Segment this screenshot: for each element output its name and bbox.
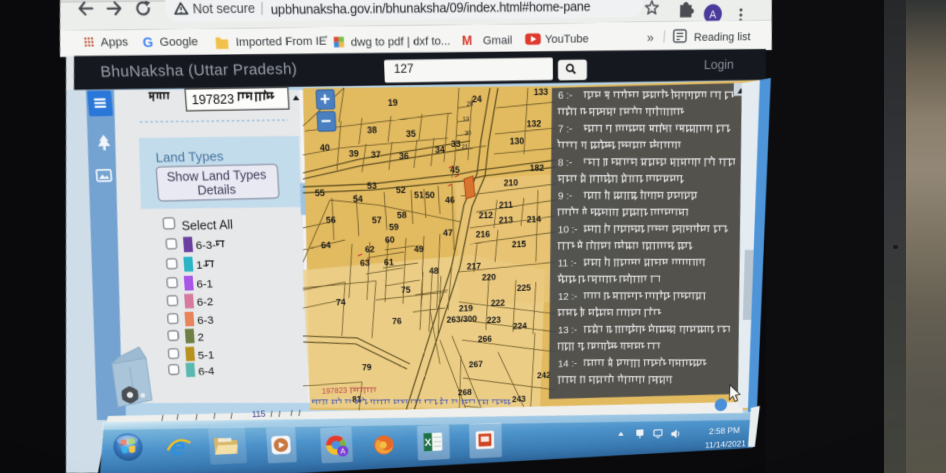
svg-text:197823: 197823 xyxy=(191,92,234,107)
svg-text:115: 115 xyxy=(252,410,266,420)
svg-text:24: 24 xyxy=(472,94,482,105)
svg-text:74: 74 xyxy=(336,298,347,308)
svg-text:51: 51 xyxy=(414,191,425,201)
svg-text:»: » xyxy=(647,30,654,45)
svg-text:38: 38 xyxy=(367,125,378,136)
svg-text:34: 34 xyxy=(435,145,446,155)
svg-text:A: A xyxy=(709,8,716,21)
svg-text:225: 225 xyxy=(517,284,532,294)
svg-text:55: 55 xyxy=(315,188,326,198)
svg-text:dwg to pdf | dxf to...: dwg to pdf | dxf to... xyxy=(351,34,451,49)
svg-text:56: 56 xyxy=(326,216,337,226)
svg-text:214: 214 xyxy=(527,215,542,225)
svg-text:243: 243 xyxy=(512,395,526,405)
svg-text:212: 212 xyxy=(479,211,494,221)
svg-text:Apps: Apps xyxy=(100,35,129,49)
svg-text:263/300: 263/300 xyxy=(446,314,477,325)
svg-text:213: 213 xyxy=(499,216,514,226)
svg-text:49: 49 xyxy=(414,245,424,255)
svg-text:Not secure: Not secure xyxy=(192,1,255,17)
svg-text:M: M xyxy=(462,33,473,48)
svg-text:79: 79 xyxy=(362,363,372,373)
svg-text:215: 215 xyxy=(512,240,527,250)
svg-text:52: 52 xyxy=(396,186,407,196)
svg-text:37: 37 xyxy=(371,150,381,160)
svg-text:6-3: 6-3 xyxy=(197,314,214,327)
svg-text:266: 266 xyxy=(478,335,493,345)
svg-text:6-2: 6-2 xyxy=(196,296,213,309)
svg-text:21: 21 xyxy=(462,144,469,151)
svg-text:133: 133 xyxy=(534,87,549,98)
svg-text:BhuNaksha (Uttar Pradesh): BhuNaksha (Uttar Pradesh) xyxy=(100,60,298,80)
svg-text:46: 46 xyxy=(445,196,455,206)
svg-text:A: A xyxy=(340,447,346,456)
svg-text:9 :-: 9 :- xyxy=(558,191,572,202)
svg-text:50: 50 xyxy=(425,191,435,201)
svg-text:Show Land Types: Show Land Types xyxy=(166,168,267,184)
svg-text:8 :-: 8 :- xyxy=(558,157,573,168)
svg-text:223: 223 xyxy=(487,316,502,326)
svg-text:6 :-: 6 :- xyxy=(558,90,573,101)
svg-text:45: 45 xyxy=(450,165,460,175)
svg-text:127: 127 xyxy=(394,61,414,76)
svg-text:7 :-: 7 :- xyxy=(558,124,573,135)
svg-text:11/14/2021: 11/14/2021 xyxy=(705,439,746,450)
svg-text:6-3-: 6-3- xyxy=(195,238,216,251)
svg-text:11 :-: 11 :- xyxy=(558,258,577,269)
svg-text:61: 61 xyxy=(384,258,394,268)
svg-text:76: 76 xyxy=(392,317,402,327)
svg-text:219: 219 xyxy=(459,304,474,314)
svg-text:X: X xyxy=(424,436,431,448)
svg-text:211: 211 xyxy=(499,201,513,211)
svg-text:132: 132 xyxy=(527,119,542,130)
svg-text:6-4: 6-4 xyxy=(198,365,215,378)
svg-text:53: 53 xyxy=(367,182,378,192)
svg-text:13 :-: 13 :- xyxy=(558,325,577,336)
svg-text:12 :-: 12 :- xyxy=(558,291,578,302)
svg-text:Imported From IE: Imported From IE xyxy=(235,34,327,49)
svg-text:268: 268 xyxy=(458,388,473,398)
svg-text:130: 130 xyxy=(510,136,525,146)
svg-text:47: 47 xyxy=(443,229,453,239)
svg-text:Select All: Select All xyxy=(181,218,233,233)
svg-text:197823: 197823 xyxy=(322,386,348,396)
svg-text:64: 64 xyxy=(321,241,332,251)
svg-text:36: 36 xyxy=(399,151,410,161)
svg-text:Reading list: Reading list xyxy=(694,30,751,44)
svg-text:63: 63 xyxy=(360,259,371,269)
svg-text:2:58 PM: 2:58 PM xyxy=(709,426,740,436)
svg-text:40: 40 xyxy=(320,143,330,154)
svg-text:222: 222 xyxy=(491,299,506,309)
svg-text:58: 58 xyxy=(397,211,408,221)
svg-text:59: 59 xyxy=(389,223,400,233)
svg-text:Gmail: Gmail xyxy=(483,33,513,47)
svg-text:33: 33 xyxy=(451,139,461,149)
svg-text:30: 30 xyxy=(465,130,472,137)
svg-text:54: 54 xyxy=(353,194,364,204)
svg-text:G: G xyxy=(142,34,154,50)
svg-text:62: 62 xyxy=(365,245,376,255)
svg-text:267: 267 xyxy=(469,360,483,370)
svg-text:39: 39 xyxy=(349,149,360,159)
svg-text:Google: Google xyxy=(159,35,198,49)
svg-text:Land Types: Land Types xyxy=(155,148,224,165)
svg-text:6-1: 6-1 xyxy=(196,277,213,290)
svg-text:10 :-: 10 :- xyxy=(558,224,578,235)
svg-text:210: 210 xyxy=(504,179,518,189)
svg-text:57: 57 xyxy=(372,216,382,226)
svg-text:e: e xyxy=(169,433,186,462)
svg-text:48: 48 xyxy=(429,267,439,277)
svg-text:60: 60 xyxy=(385,236,395,246)
svg-text:75: 75 xyxy=(401,286,411,296)
svg-text:19: 19 xyxy=(388,98,399,109)
svg-text:13: 13 xyxy=(463,116,470,123)
svg-text:217: 217 xyxy=(467,262,481,272)
svg-text:Login: Login xyxy=(704,56,734,71)
svg-text:14 :-: 14 :- xyxy=(558,359,577,370)
svg-text:224: 224 xyxy=(513,322,528,332)
svg-text:YouTube: YouTube xyxy=(545,32,589,46)
svg-text:2: 2 xyxy=(197,331,204,344)
svg-text:35: 35 xyxy=(406,129,417,139)
svg-text:216: 216 xyxy=(476,230,491,240)
svg-text:Details: Details xyxy=(197,182,236,197)
svg-text:5-1: 5-1 xyxy=(198,349,215,362)
svg-text:182: 182 xyxy=(530,164,545,174)
svg-text:220: 220 xyxy=(482,273,496,283)
